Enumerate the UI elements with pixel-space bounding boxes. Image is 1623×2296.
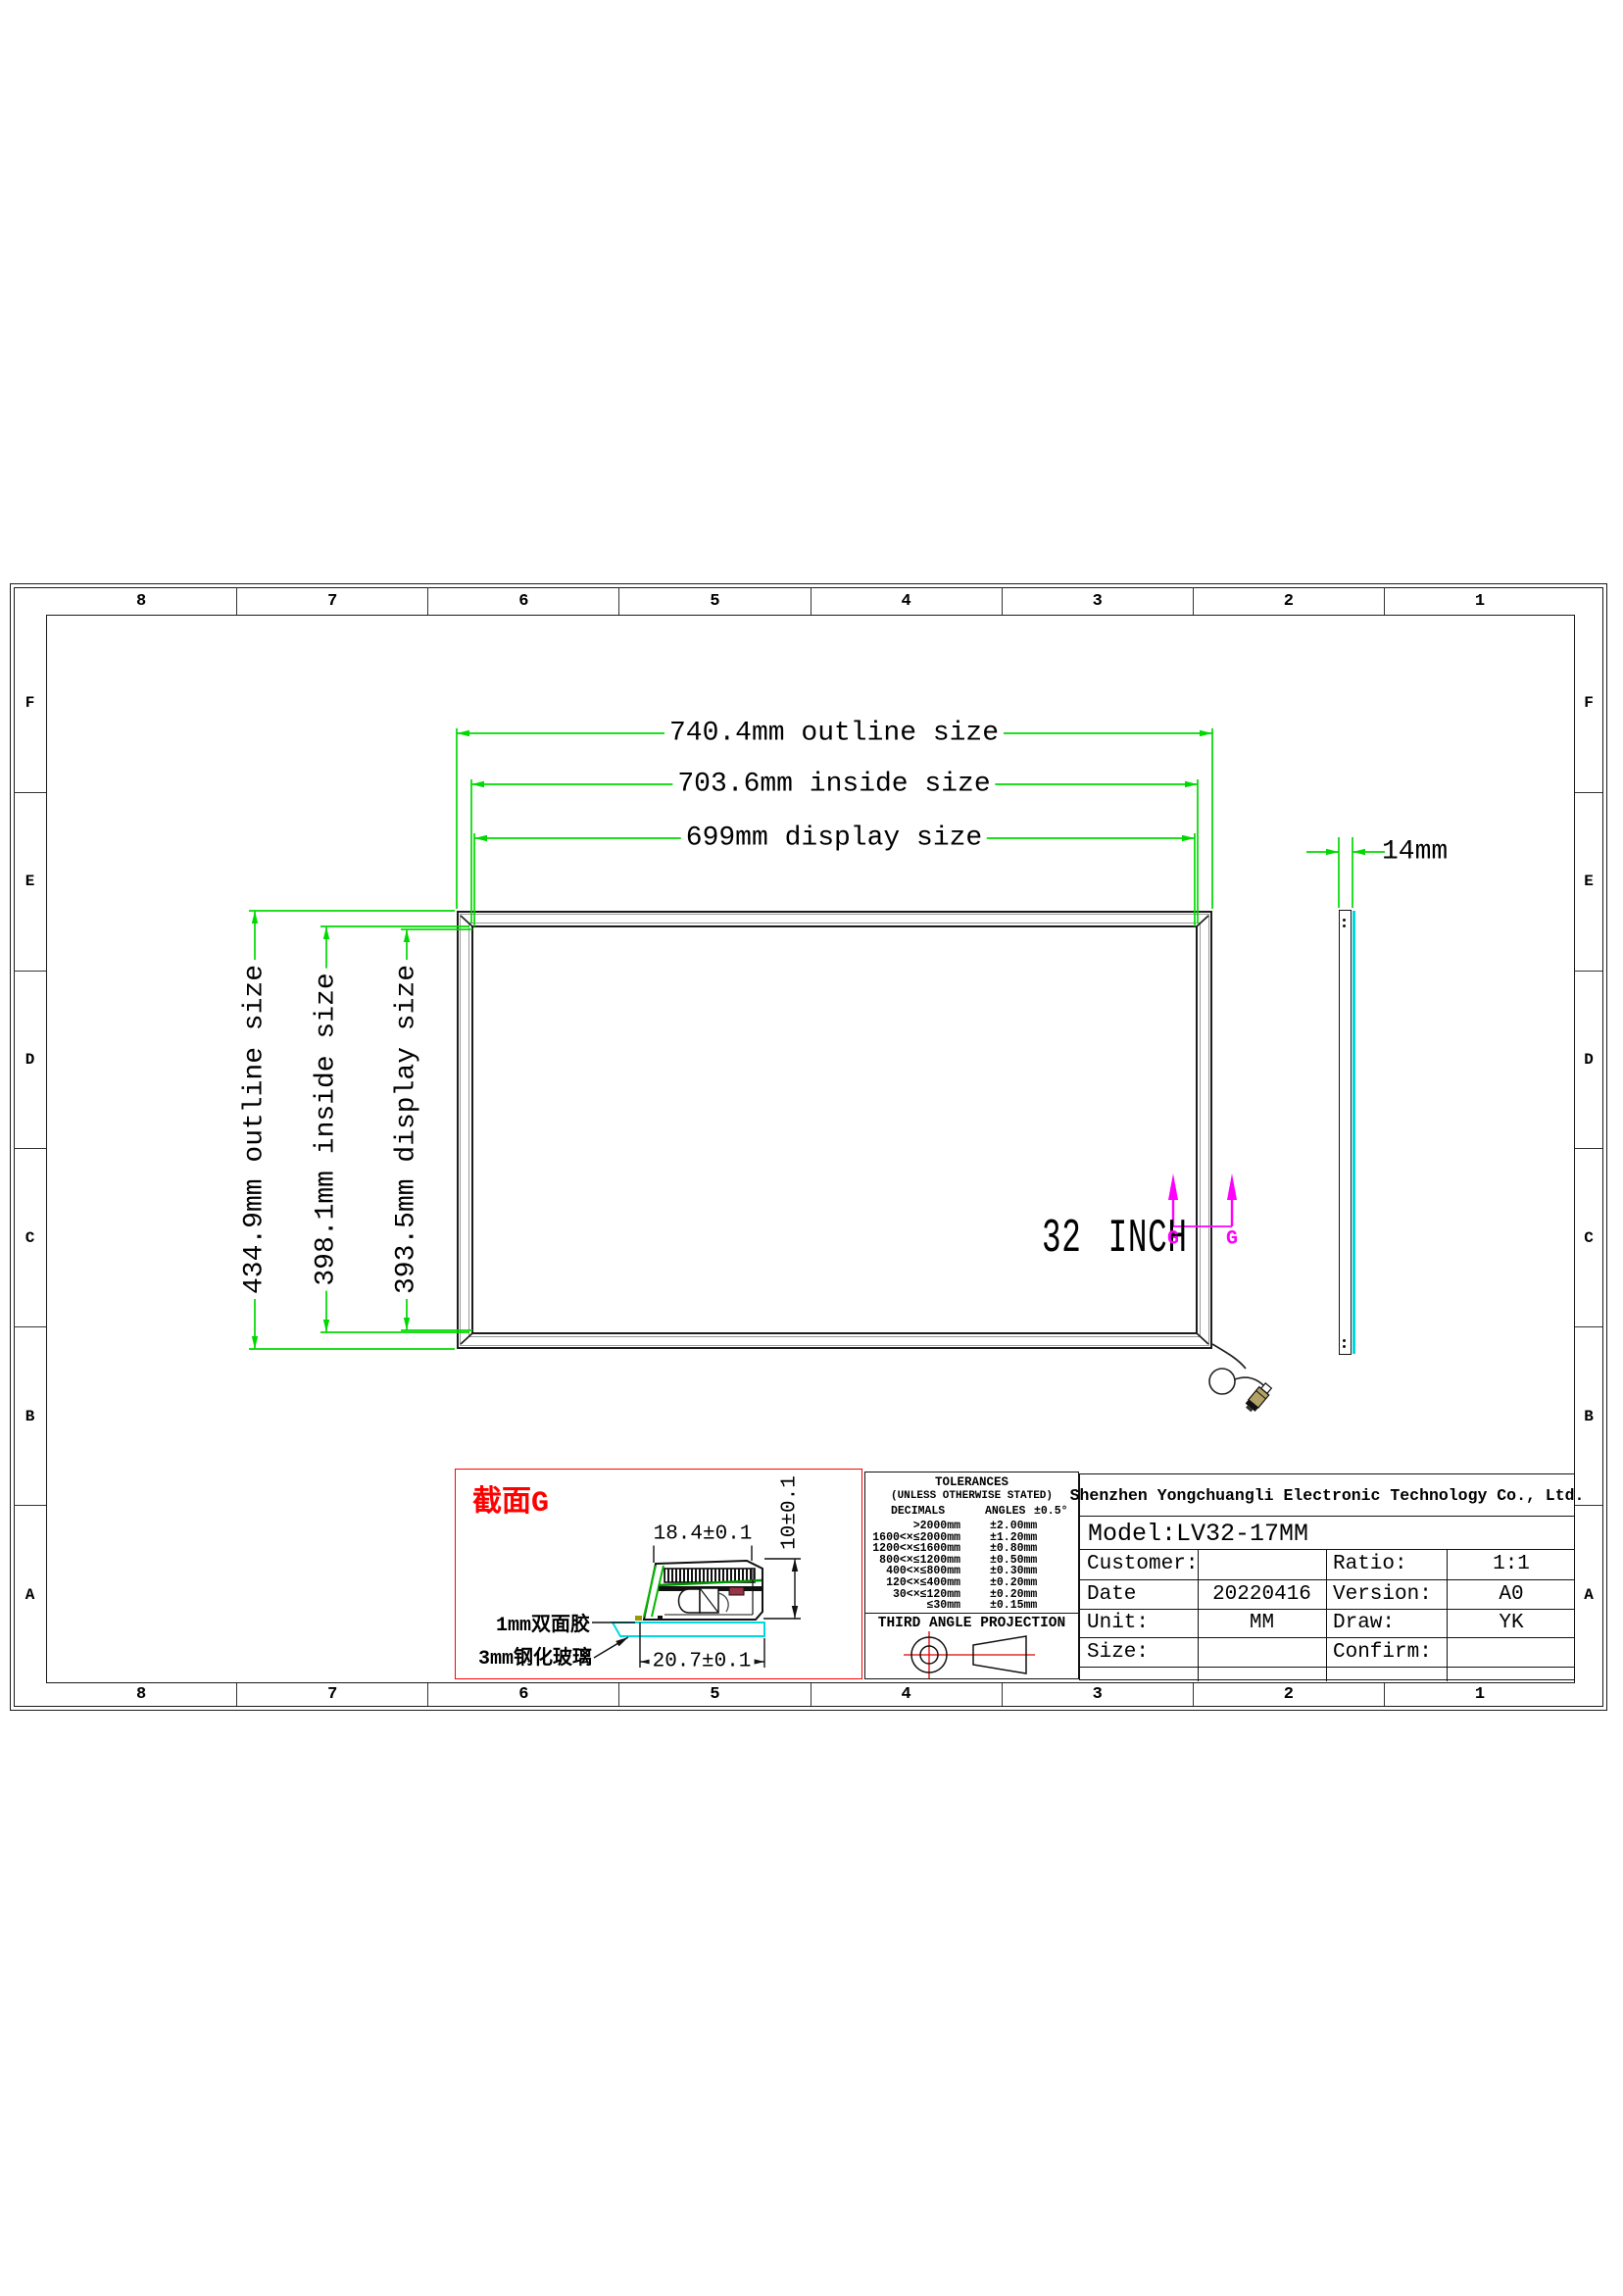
field-unit-value: MM xyxy=(1198,1609,1326,1637)
tolerances-table: >2000mm±2.00mm 1600<×≤2000mm±1.20mm 1200… xyxy=(865,1521,1078,1612)
field-ratio-value: 1:1 xyxy=(1447,1549,1576,1579)
tolerances-block: TOLERANCES (UNLESS OTHERWISE STATED) DEC… xyxy=(864,1472,1079,1679)
panel-corner-bevels xyxy=(461,916,1208,1344)
tolerance-value: ±2.00mm xyxy=(990,1521,1037,1532)
field-version-value: A0 xyxy=(1447,1579,1576,1609)
title-block: Shenzhen Yongchuangli Electronic Technol… xyxy=(1079,1473,1575,1680)
field-date-value: 20220416 xyxy=(1198,1579,1326,1609)
dim-outline-height-label: 434.9mm outline size xyxy=(240,960,270,1299)
model-number: Model:LV32-17MM xyxy=(1088,1518,1308,1549)
tolerance-row: >2000mm±2.00mm xyxy=(865,1521,1078,1532)
section-letter-right: G xyxy=(1226,1228,1238,1251)
field-confirm-value xyxy=(1447,1637,1576,1667)
field-ratio-label: Ratio: xyxy=(1326,1549,1451,1579)
dim-inside-height-label: 398.1mm inside size xyxy=(312,968,342,1290)
tolerance-row: 120<×≤400mm±0.20mm xyxy=(865,1577,1078,1589)
section-letter-left: G xyxy=(1167,1228,1179,1251)
section-detail-title: 截面G xyxy=(472,1476,549,1521)
dim-inside-width-label: 703.6mm inside size xyxy=(672,770,995,800)
tolerance-range: ≤30mm xyxy=(865,1600,960,1612)
field-date-label: Date xyxy=(1080,1579,1203,1609)
field-confirm-label: Confirm: xyxy=(1326,1637,1451,1667)
tolerance-value: ±0.15mm xyxy=(990,1600,1037,1612)
tolerance-value: ±0.20mm xyxy=(990,1577,1037,1589)
title-block-line xyxy=(1080,1516,1574,1517)
usb-connector-icon xyxy=(1244,1381,1274,1414)
field-draw-value: YK xyxy=(1447,1609,1576,1637)
tolerance-row: 30<×≤120mm±0.20mm xyxy=(865,1589,1078,1601)
tolerance-range: 120<×≤400mm xyxy=(865,1577,960,1589)
section-dim-height-label: 10±0.1 xyxy=(779,1472,802,1553)
company-name: Shenzhen Yongchuangli Electronic Technol… xyxy=(1080,1474,1574,1516)
tolerances-subtitle: (UNLESS OTHERWISE STATED) xyxy=(865,1490,1078,1502)
projection-label: THIRD ANGLE PROJECTION xyxy=(865,1616,1078,1631)
thickness-label: 14mm xyxy=(1382,837,1448,868)
tolerances-title: TOLERANCES xyxy=(865,1475,1078,1489)
field-size-label: Size: xyxy=(1080,1637,1203,1667)
title-block-line xyxy=(1080,1667,1574,1668)
tolerance-range: >2000mm xyxy=(865,1521,960,1532)
section-dim-bottom-label: 20.7±0.1 xyxy=(650,1651,755,1673)
field-customer-label: Customer: xyxy=(1080,1549,1203,1579)
dim-display-height-label: 393.5mm display size xyxy=(392,960,422,1299)
tolerance-row: ≤30mm±0.15mm xyxy=(865,1600,1078,1612)
tolerances-col-angles: ANGLES xyxy=(985,1505,1025,1518)
tolerances-angles-value: ±0.5° xyxy=(1034,1505,1068,1518)
field-customer-value xyxy=(1198,1549,1326,1579)
field-unit-label: Unit: xyxy=(1080,1609,1203,1637)
panel-size-label: 32 INCH xyxy=(1042,1213,1188,1266)
engineering-drawing-sheet: 8 7 6 5 4 3 2 1 8 7 6 5 4 3 2 1 F E D C … xyxy=(0,0,1623,2296)
tape-callout-label: 1mm双面胶 xyxy=(496,1608,590,1637)
dim-outline-width-label: 740.4mm outline size xyxy=(664,719,1004,749)
tolerances-col-decimals: DECIMALS xyxy=(891,1505,945,1518)
field-version-label: Version: xyxy=(1326,1579,1451,1609)
field-draw-label: Draw: xyxy=(1326,1609,1451,1637)
field-size-value xyxy=(1198,1637,1326,1667)
section-dim-top-label: 18.4±0.1 xyxy=(651,1523,756,1546)
dim-display-width-label: 699mm display size xyxy=(681,824,987,854)
tolerances-divider xyxy=(865,1613,1078,1614)
glass-callout-label: 3mm钢化玻璃 xyxy=(478,1641,592,1671)
touch-frame-cable xyxy=(1209,1344,1273,1414)
